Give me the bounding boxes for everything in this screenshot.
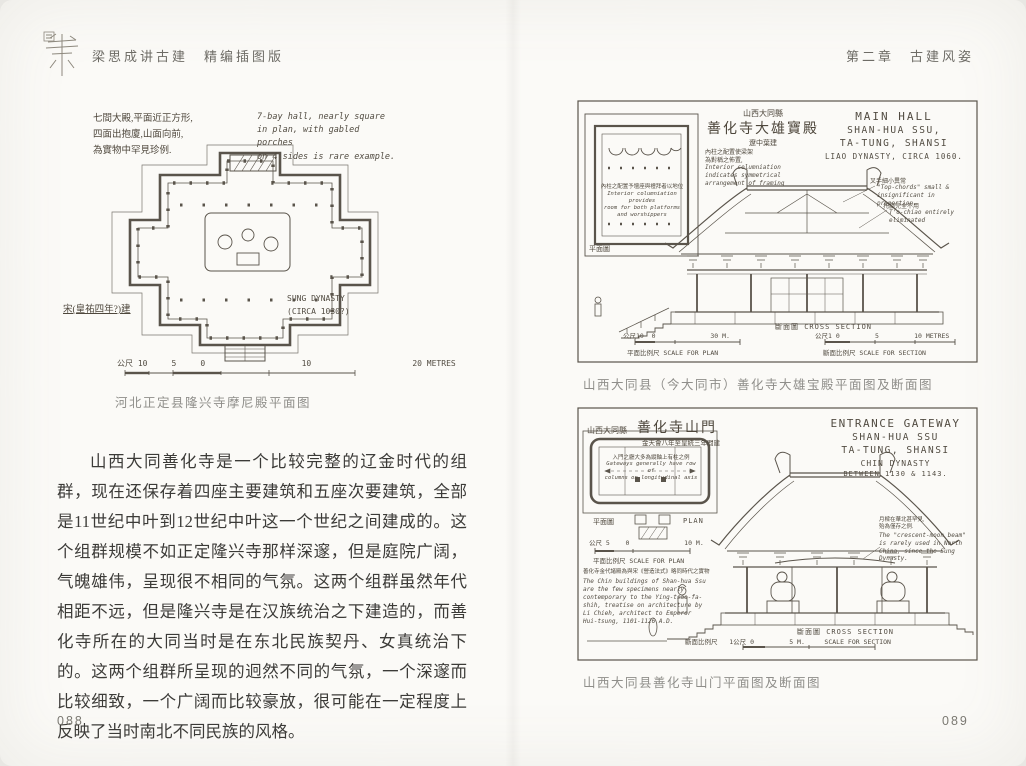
page-number-right: 089 (942, 714, 969, 728)
plan-date-chinese: 宋(皇祐四年?)建 (63, 301, 131, 315)
fig2-scale-plan-name: 平面比例尺 SCALE FOR PLAN (593, 555, 684, 565)
book-spread: 梁思成讲古建 精编插图版 第二章 古建风姿 (0, 0, 1026, 766)
fig2-title-en-4: CHIN DYNASTY (823, 459, 968, 468)
fig1-scale-plan-name: 平面比例尺 SCALE FOR PLAN (627, 347, 718, 357)
fig1-title-en-2: SHAN-HUA SSU, (823, 125, 965, 136)
fig1-scale-section-name: 斷面比例尺 SCALE FOR SECTION (823, 347, 926, 357)
main-hall-figure: 山西大同縣 善化寺大雄寶殿 遼中葉建 內柱之配置使梁架 為對稱之佈置, Inte… (575, 98, 980, 365)
fig2-title-en-3: TA-TUNG, SHANSI (823, 445, 968, 456)
fig2-title-cn: 善化寺山門 (637, 417, 717, 437)
fig2-moon-note-cn: 月樑在華北甚罕見, 殆為僅存之例. (879, 517, 971, 531)
plan-note-chinese: 七間大殿,平面近正方形, 四面出抱廈,山面向前, 為實物中罕見珍例. (93, 111, 243, 159)
figure-caption-bottom-right: 山西大同县善化寺山门平面图及断面图 (583, 672, 821, 691)
fig2-title-en-5: BETWEEN 1130 & 1143. (823, 470, 968, 478)
fig1-note-en: Interior columniation indicates symmetri… (705, 164, 800, 187)
fig2-location-cn: 山西大同縣 (587, 425, 627, 436)
fig1-scale-section: 公尺1 0 5 10 METRES (815, 330, 949, 340)
fig2-chin-note-cn: 善化寺金代諸殿為與宋《營造法式》略同時代之實物 (583, 567, 748, 575)
publisher-logo-icon (40, 30, 84, 80)
chapter-title: 第二章 古建风姿 (846, 46, 974, 65)
book-title: 梁思成讲古建 精编插图版 (92, 46, 284, 65)
fig1-title-en-1: MAIN HALL (823, 110, 965, 123)
fig1-plan-note-en: Interior columniation provides room for … (597, 191, 687, 220)
fig2-date-cn: 金天會八年至皇統三年間建 (611, 437, 751, 447)
fig2-plan-label-cn: 平面圖 (593, 517, 614, 527)
plan-note-english: 7-bay hall, nearly square in plan, with … (257, 111, 397, 164)
fig1-title-en-4: LIAO DYNASTY, CIRCA 1060. (823, 152, 965, 161)
page-gutter (505, 0, 521, 766)
fig2-scale-plan: 公尺 5 0 10 M. (589, 537, 704, 547)
fig1-scale-plan: 公尺10 0 30 M. (623, 330, 730, 340)
fig2-moon-note-en: The "crescent-moon beam" is rarely used … (879, 532, 971, 563)
fig2-plan-label-en: PLAN (683, 517, 704, 525)
fig2-scale-section: 斷面比例尺 1公尺 0 5 M. SCALE FOR SECTION (685, 636, 891, 646)
fig1-plan-note-cn: 內柱之配置予壇座與禮拜者以地位 (597, 182, 687, 190)
fig1-right-note2-en: T'o-chiao entirely eliminated (889, 209, 974, 225)
fig1-title-cn: 善化寺大雄寶殿 (699, 118, 827, 138)
fig2-chin-note-en: The Chin buildings of Shan-hua Ssu are t… (583, 578, 723, 627)
moni-hall-figure: 七間大殿,平面近正方形, 四面出抱廈,山面向前, 為實物中罕見珍例. 7-bay… (55, 105, 415, 390)
fig2-plan-note-en: Gateways generally have row of columns o… (603, 461, 699, 482)
fig2-title-en-1: ENTRANCE GATEWAY (823, 417, 968, 430)
fig2-title-en-2: SHAN-HUA SSU (823, 432, 968, 443)
body-paragraph: 山西大同善化寺是一个比较完整的辽金时代的组群，现在还保存着四座主要建筑和五座次要… (57, 447, 467, 747)
gateway-figure: 山西大同縣 善化寺山門 金天會八年至皇統三年間建 ENTRANCE GATEWA… (575, 405, 980, 663)
fig1-date-cn: 遼中葉建 (733, 138, 793, 148)
fig1-title-en-3: TA-TUNG, SHANSI (823, 138, 965, 149)
page-number-left: 088 (57, 714, 84, 728)
figure-caption-top-right: 山西大同县（今大同市）善化寺大雄宝殿平面图及断面图 (583, 374, 933, 393)
plan-scale-label: 公尺 10 5 0 10 20 METRES (117, 358, 456, 369)
figure-caption-left: 河北正定县隆兴寺摩尼殿平面图 (115, 392, 311, 411)
plan-date-english: SUNG DYNASTY (CIRCA 1030?) (287, 293, 387, 319)
fig2-plan-note-cn: 入門之廳大多為縱軸上有柱之例 (603, 453, 699, 461)
fig1-plan-label: 平面圖 (589, 244, 610, 254)
